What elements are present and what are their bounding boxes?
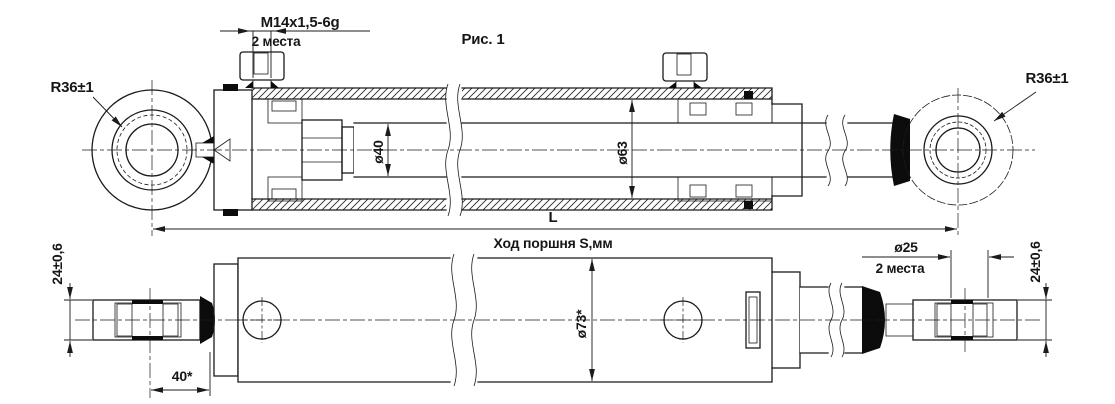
dim-left-eye-radius: R36±1 <box>50 79 122 127</box>
dim-left-eye-width: 24±0,6 <box>49 243 92 357</box>
dim-right-eye-radius: R36±1 <box>994 70 1069 121</box>
left-eye-width-label: 24±0,6 <box>49 243 65 285</box>
rod-break-line <box>843 115 848 186</box>
stroke-label: Ход поршня S,мм <box>494 235 613 251</box>
drawing-canvas: M14x1,5-6g 2 места Рис. 1 R36±1 R36±1 ø4… <box>0 0 1115 404</box>
rod-break-line <box>826 115 831 186</box>
thread-callout-places: 2 места <box>252 34 301 49</box>
right-eye-radius-label: R36±1 <box>1025 70 1068 87</box>
technical-drawing-page: M14x1,5-6g 2 места Рис. 1 R36±1 R36±1 ø4… <box>0 0 1115 404</box>
eye-offset-label: 40* <box>172 368 193 384</box>
dim-pin-bore: ø25 2 места <box>862 239 1014 298</box>
figure-caption: Рис. 1 <box>461 31 504 48</box>
top-view-cylinder-section <box>82 52 1035 236</box>
dim-eye-offset: 40* <box>151 352 210 396</box>
rod-diameter-label: ø40 <box>370 140 386 164</box>
weld-mark <box>202 157 214 164</box>
body-diameter-label: ø73* <box>573 309 589 339</box>
dim-length-and-stroke: L Ход поршня S,мм <box>153 209 957 251</box>
thread-callout-value: M14x1,5-6g <box>261 14 340 31</box>
pin-bore-places: 2 места <box>876 261 925 276</box>
weld-mark <box>202 136 214 143</box>
port-plug-right <box>663 53 707 88</box>
dim-thread-callout: M14x1,5-6g 2 места <box>220 14 370 78</box>
bore-diameter-label: ø63 <box>614 141 630 165</box>
left-eye-radius-label: R36±1 <box>50 79 93 96</box>
dim-right-eye-width: 24±0,6 <box>1018 241 1052 357</box>
pin-bore-label: ø25 <box>894 239 918 255</box>
length-label: L <box>549 209 558 226</box>
port-plug-left <box>240 52 284 88</box>
right-eye-width-label: 24±0,6 <box>1027 241 1043 283</box>
dim-bore-diameter: ø63 <box>614 100 632 198</box>
